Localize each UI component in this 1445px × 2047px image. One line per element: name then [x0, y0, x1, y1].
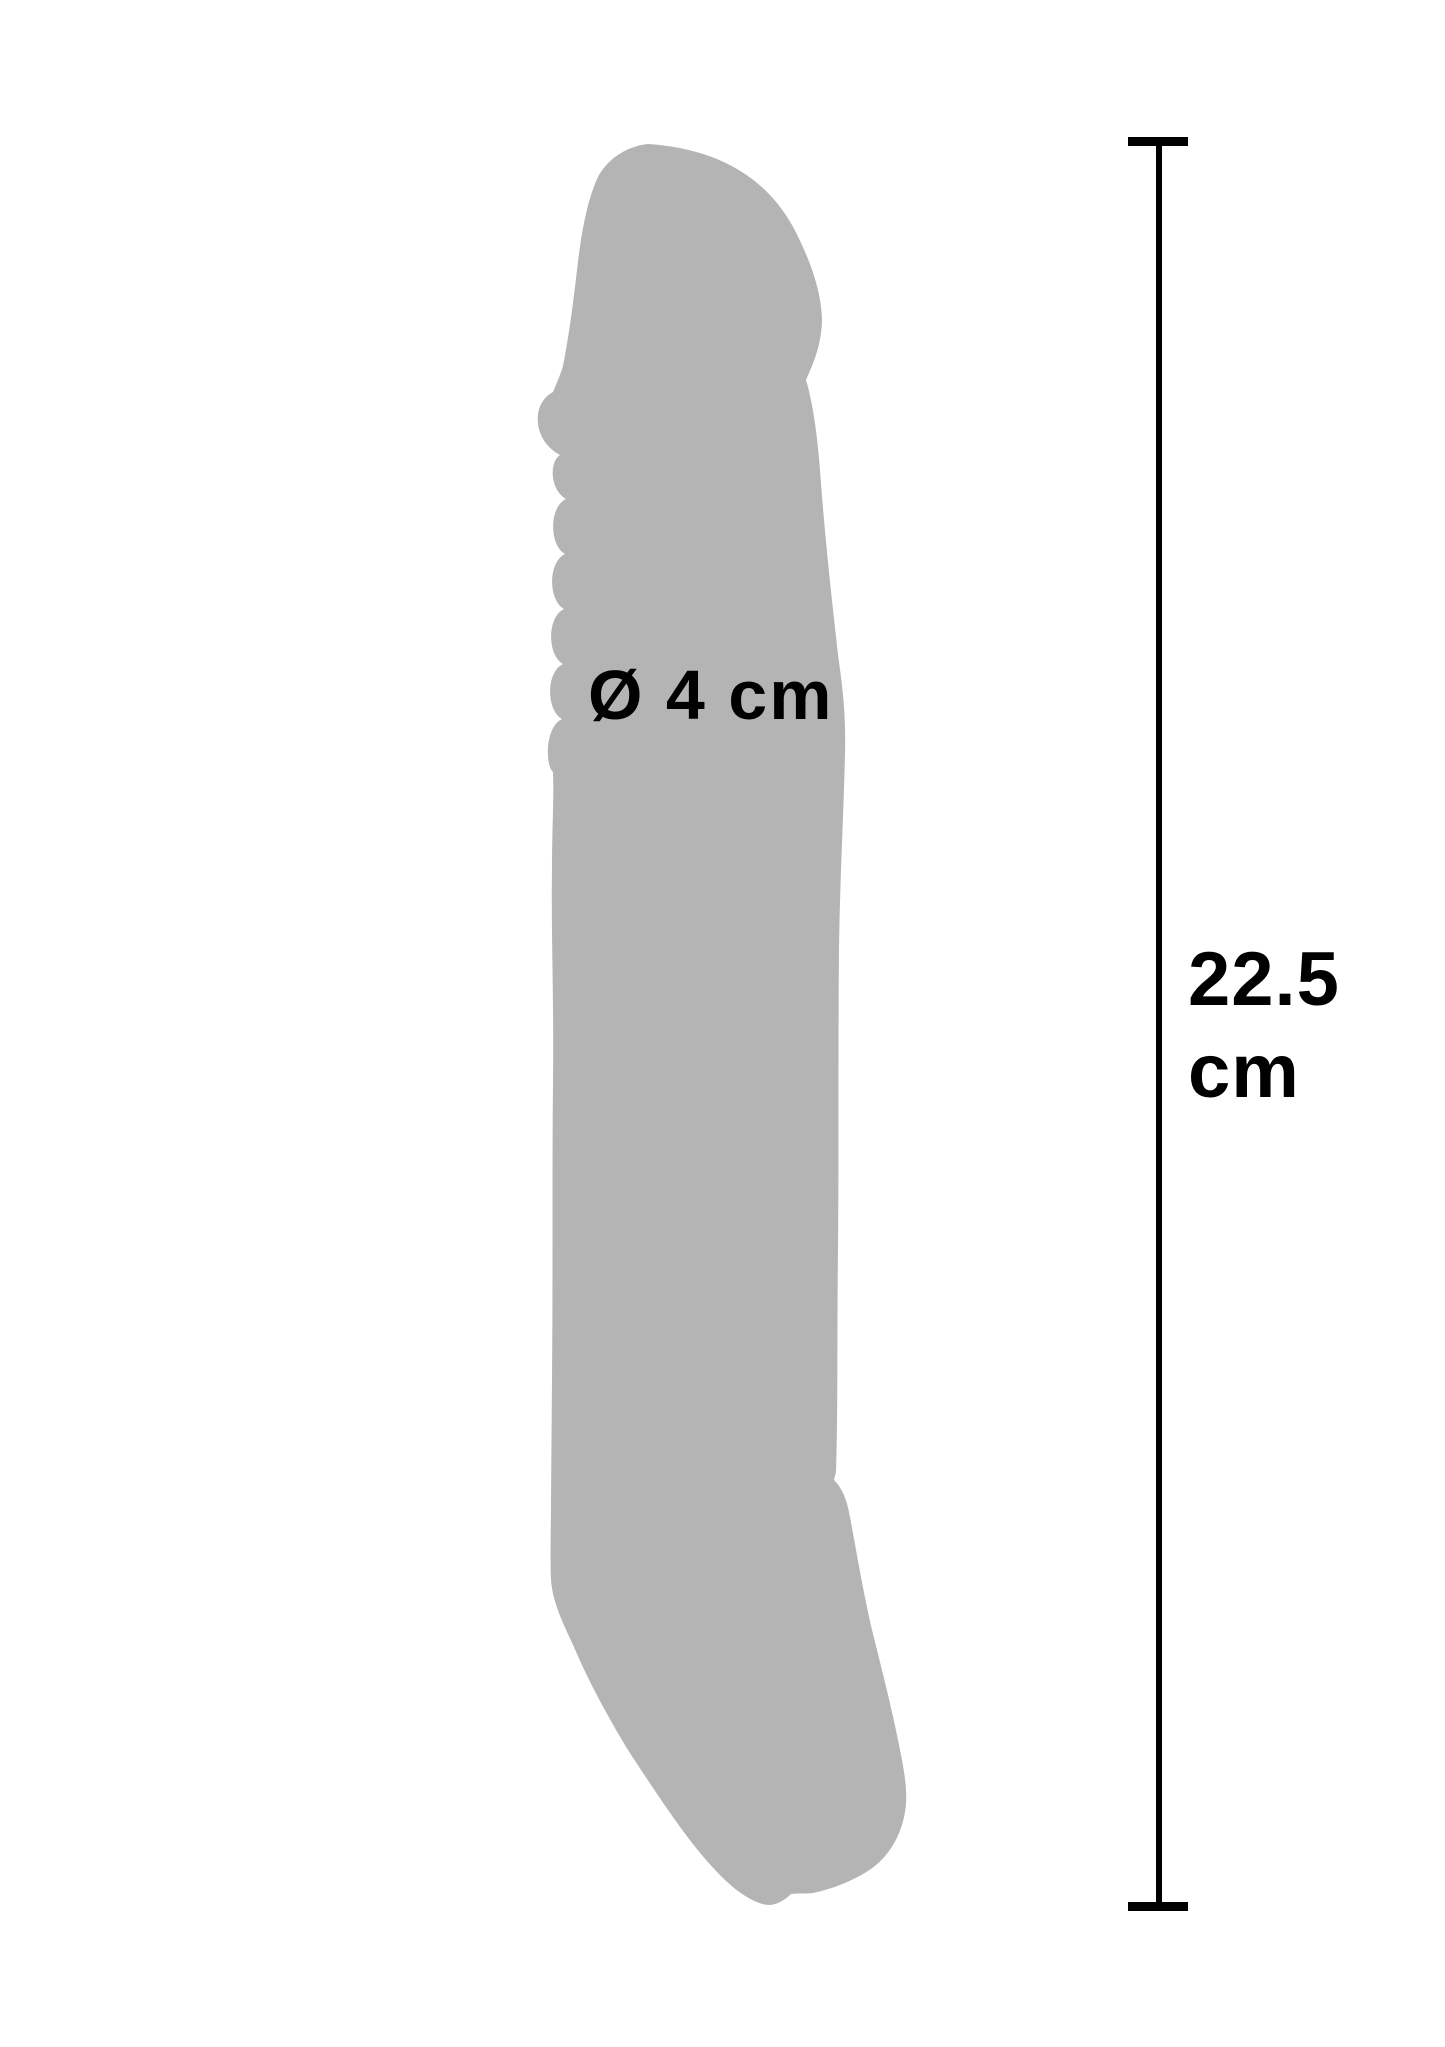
- length-unit-label: cm: [1188, 1029, 1300, 1114]
- product-silhouette: [538, 144, 906, 1905]
- length-dimension: 22.5 cm: [1128, 137, 1340, 1911]
- product-dimension-diagram: Ø 4 cm 22.5 cm: [0, 0, 1445, 2047]
- diameter-label: Ø 4 cm: [588, 656, 833, 734]
- length-value-label: 22.5: [1188, 937, 1340, 1022]
- dimension-bottom-cap-line: [1128, 1902, 1188, 1911]
- dimension-diagram-canvas: Ø 4 cm 22.5 cm: [0, 0, 1445, 2047]
- dimension-vertical-line: [1156, 141, 1162, 1907]
